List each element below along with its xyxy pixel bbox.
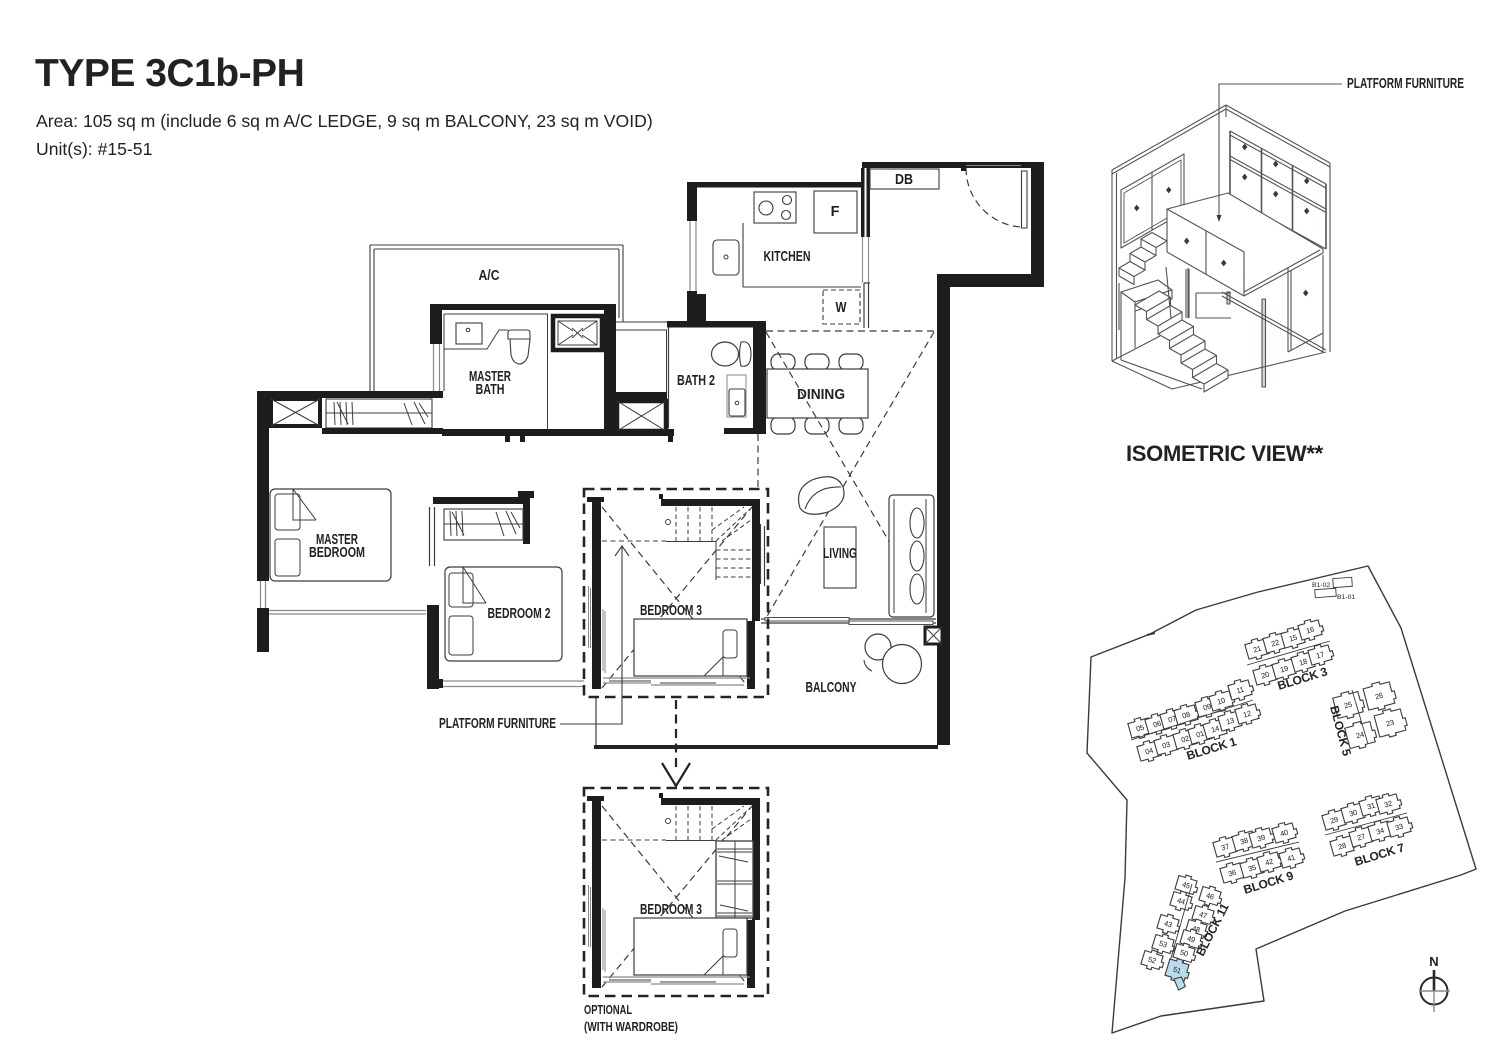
svg-text:BEDROOM 3: BEDROOM 3 [640, 902, 702, 918]
svg-text:DB: DB [895, 172, 913, 188]
svg-text:BEDROOM 3: BEDROOM 3 [640, 603, 702, 619]
svg-text:W: W [836, 300, 847, 316]
svg-text:F: F [831, 204, 840, 220]
svg-text:Area: 105 sq m (include 6 sq m: Area: 105 sq m (include 6 sq m A/C LEDGE… [36, 111, 653, 131]
svg-text:ISOMETRIC VIEW**: ISOMETRIC VIEW** [1126, 441, 1324, 466]
svg-text:OPTIONAL: OPTIONAL [584, 1002, 632, 1017]
svg-text:BEDROOM: BEDROOM [309, 545, 365, 561]
svg-text:TYPE 3C1b-PH: TYPE 3C1b-PH [35, 52, 304, 95]
svg-text:N: N [1429, 954, 1438, 969]
svg-text:DINING: DINING [797, 387, 845, 403]
svg-text:BATH 2: BATH 2 [677, 373, 715, 389]
svg-text:BEDROOM 2: BEDROOM 2 [488, 606, 551, 622]
svg-text:PLATFORM FURNITURE: PLATFORM FURNITURE [1347, 76, 1464, 92]
svg-text:Unit(s): #15-51: Unit(s): #15-51 [36, 139, 152, 159]
svg-text:B1-01: B1-01 [1337, 594, 1355, 601]
svg-text:BALCONY: BALCONY [806, 680, 857, 696]
svg-text:PLATFORM FURNITURE: PLATFORM FURNITURE [439, 716, 556, 732]
svg-text:BATH: BATH [476, 382, 505, 398]
svg-text:B1-02: B1-02 [1312, 582, 1330, 589]
svg-text:KITCHEN: KITCHEN [764, 249, 811, 265]
svg-text:A/C: A/C [479, 268, 500, 284]
svg-text:LIVING: LIVING [823, 546, 857, 562]
svg-text:(WITH WARDROBE): (WITH WARDROBE) [584, 1019, 678, 1034]
